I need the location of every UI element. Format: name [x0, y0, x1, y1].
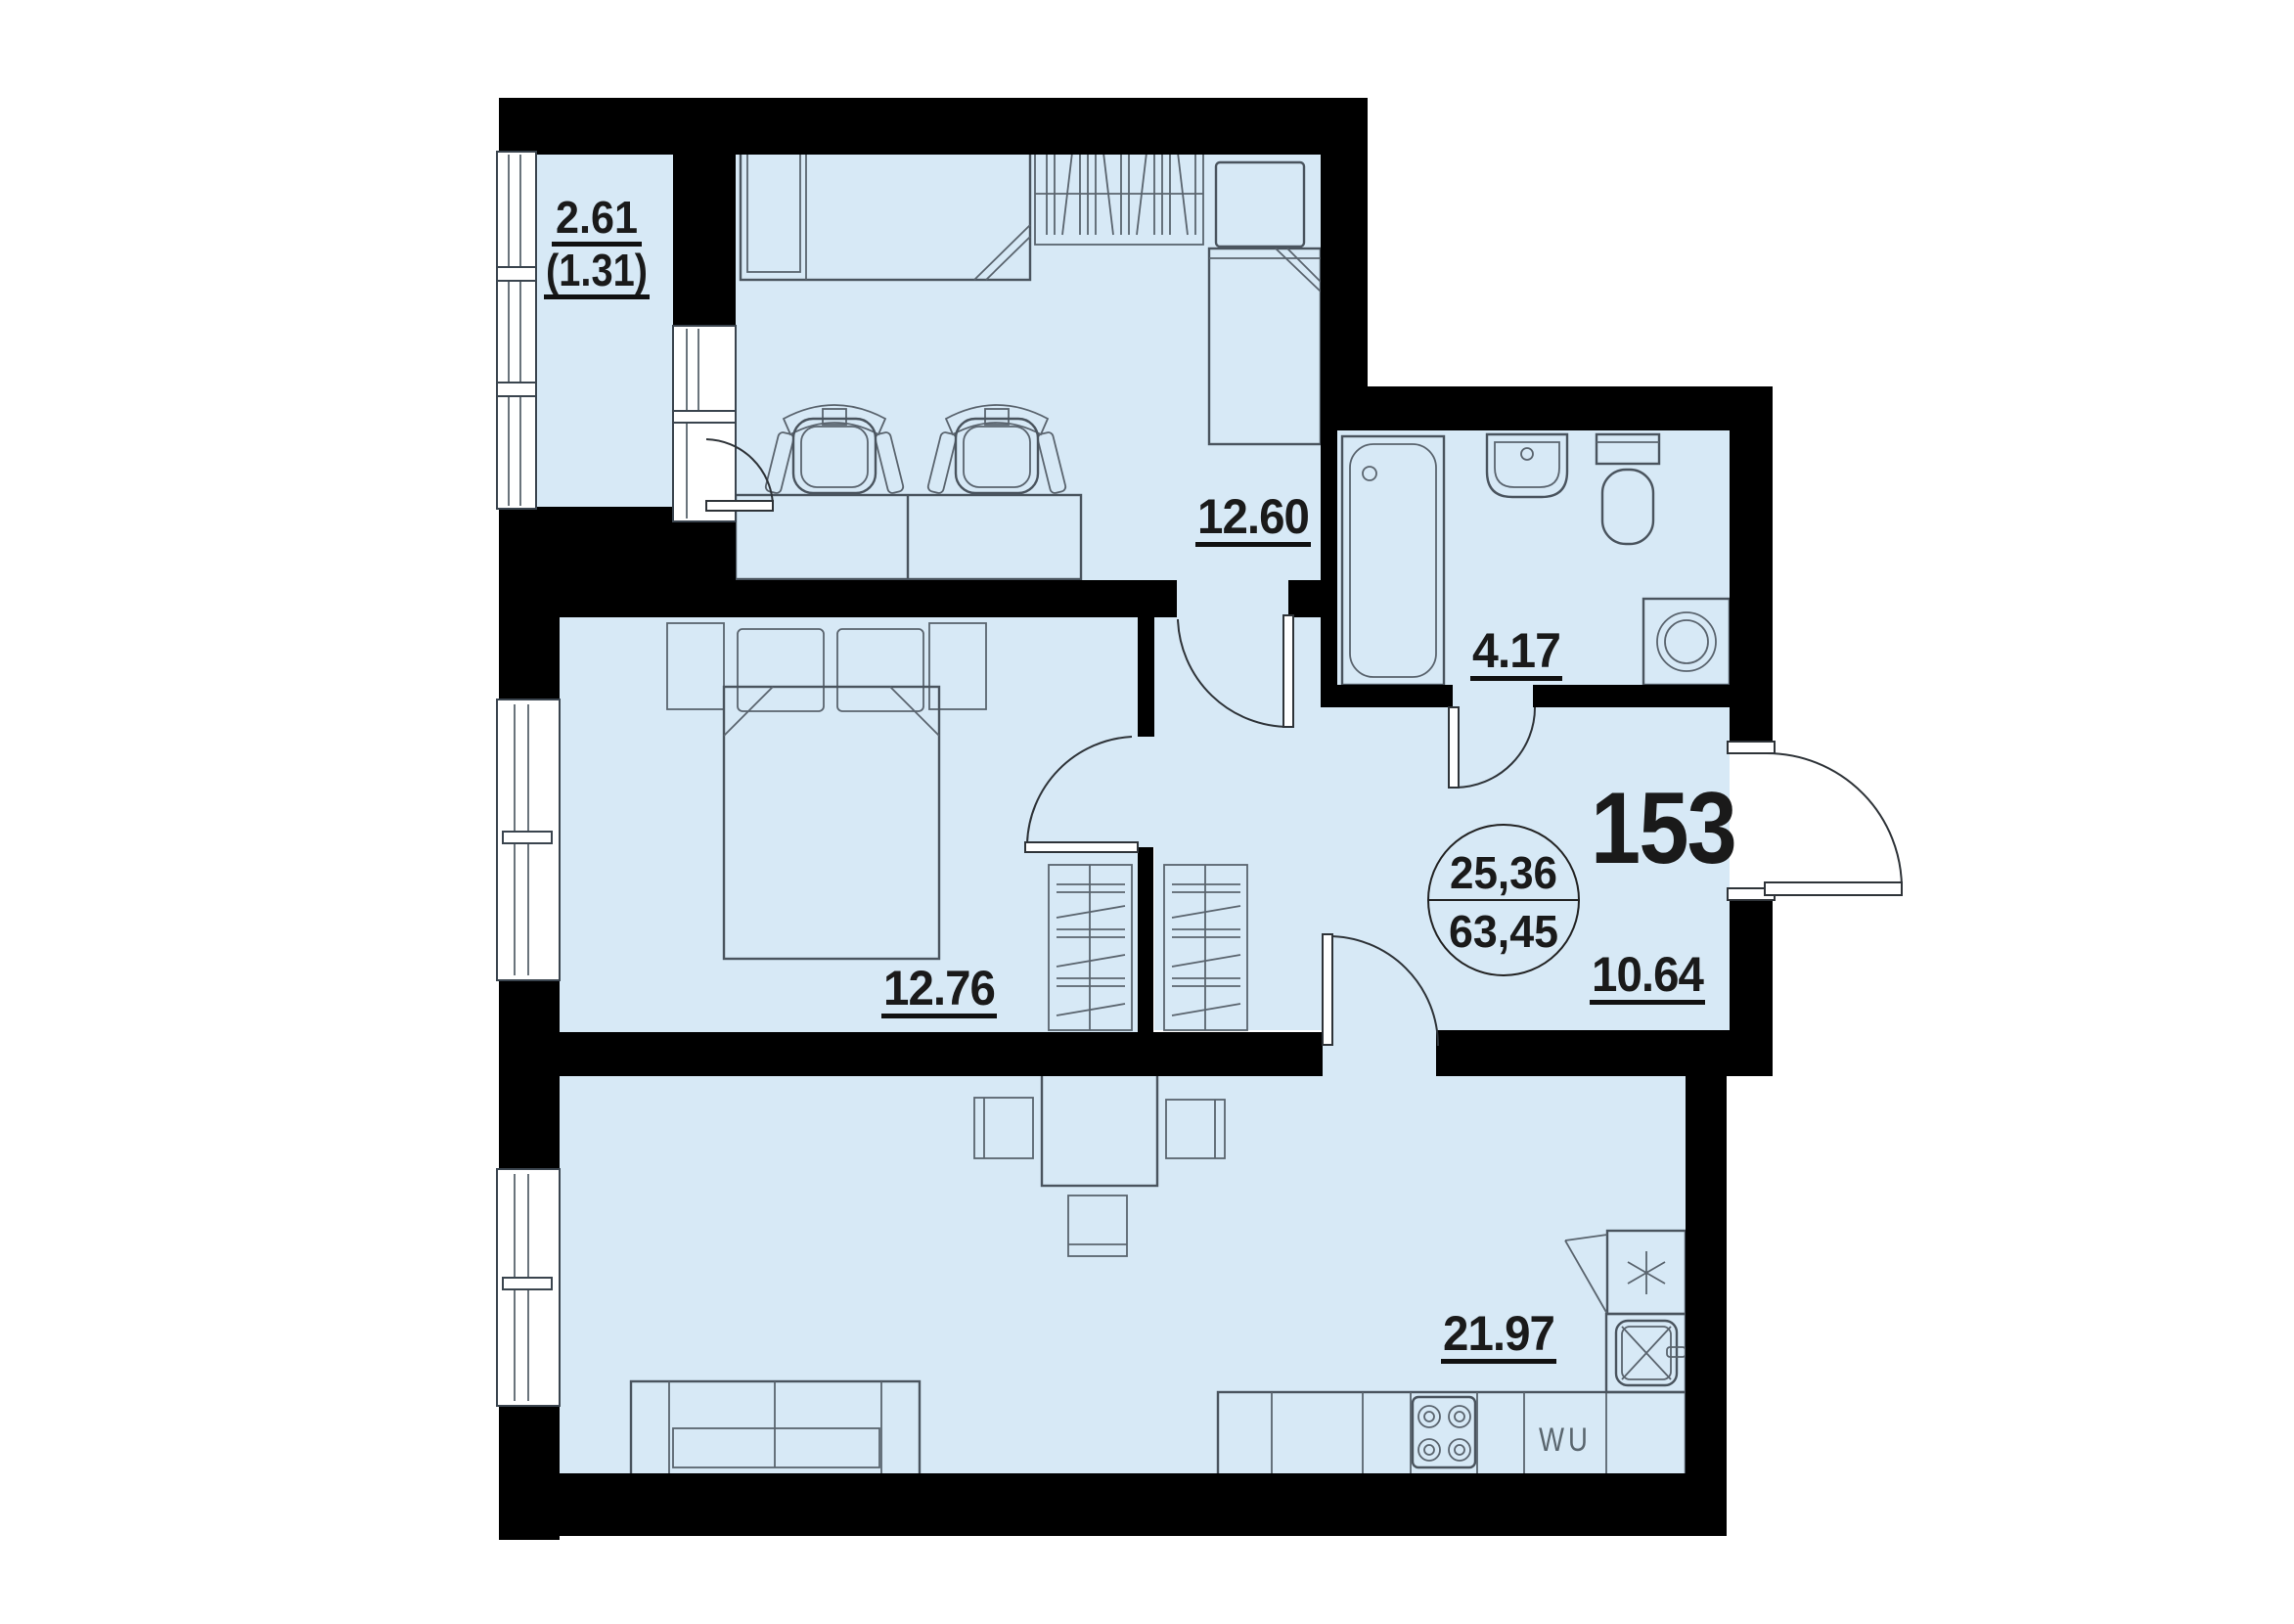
living-area-value: 25,36: [1450, 847, 1557, 898]
dishwasher-label: WU: [1539, 1421, 1592, 1459]
bedroom-window: [497, 699, 560, 980]
room-floor-living: [558, 1076, 1686, 1475]
unit-number: 153: [1591, 772, 1735, 885]
balcony-door-window-unit: [673, 326, 736, 521]
room-label-children: 12.60: [1197, 489, 1309, 544]
total-area-value: 63,45: [1449, 906, 1558, 957]
balcony-glazing: [497, 152, 536, 509]
living-window: [497, 1169, 560, 1406]
floor-plan-page: 2.61 (1.31) 12.60 4.17 12.76 10.64 21.97…: [0, 0, 2294, 1624]
room-floor-bedroom: [558, 617, 1138, 1032]
opening-children-door: [1177, 580, 1288, 617]
room-label-living: 21.97: [1443, 1306, 1554, 1361]
room-label-balcony: 2.61: [556, 192, 638, 243]
entrance-door: [1728, 742, 1902, 900]
area-circle: 25,36 63,45: [1428, 825, 1579, 975]
room-label-balcony-note: (1.31): [546, 245, 648, 295]
opening-hall-living: [1323, 1030, 1436, 1076]
opening-bedroom-door: [1138, 737, 1154, 847]
opening-bathroom-door: [1453, 685, 1533, 707]
room-label-bathroom: 4.17: [1472, 623, 1560, 678]
room-label-hallway: 10.64: [1592, 947, 1704, 1002]
floor-plan: 2.61 (1.31) 12.60 4.17 12.76 10.64 21.97…: [0, 0, 2294, 1624]
room-label-bedroom: 12.76: [883, 961, 995, 1015]
